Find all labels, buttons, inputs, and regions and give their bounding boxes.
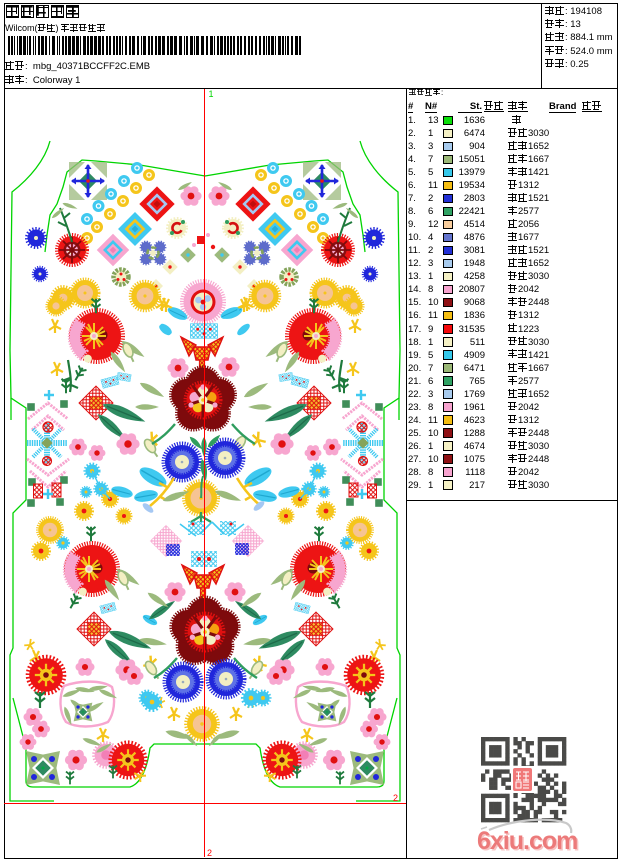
svg-text:2: 2 — [207, 848, 212, 858]
svg-text:1: 1 — [209, 89, 214, 99]
svg-text:2: 2 — [393, 793, 398, 803]
